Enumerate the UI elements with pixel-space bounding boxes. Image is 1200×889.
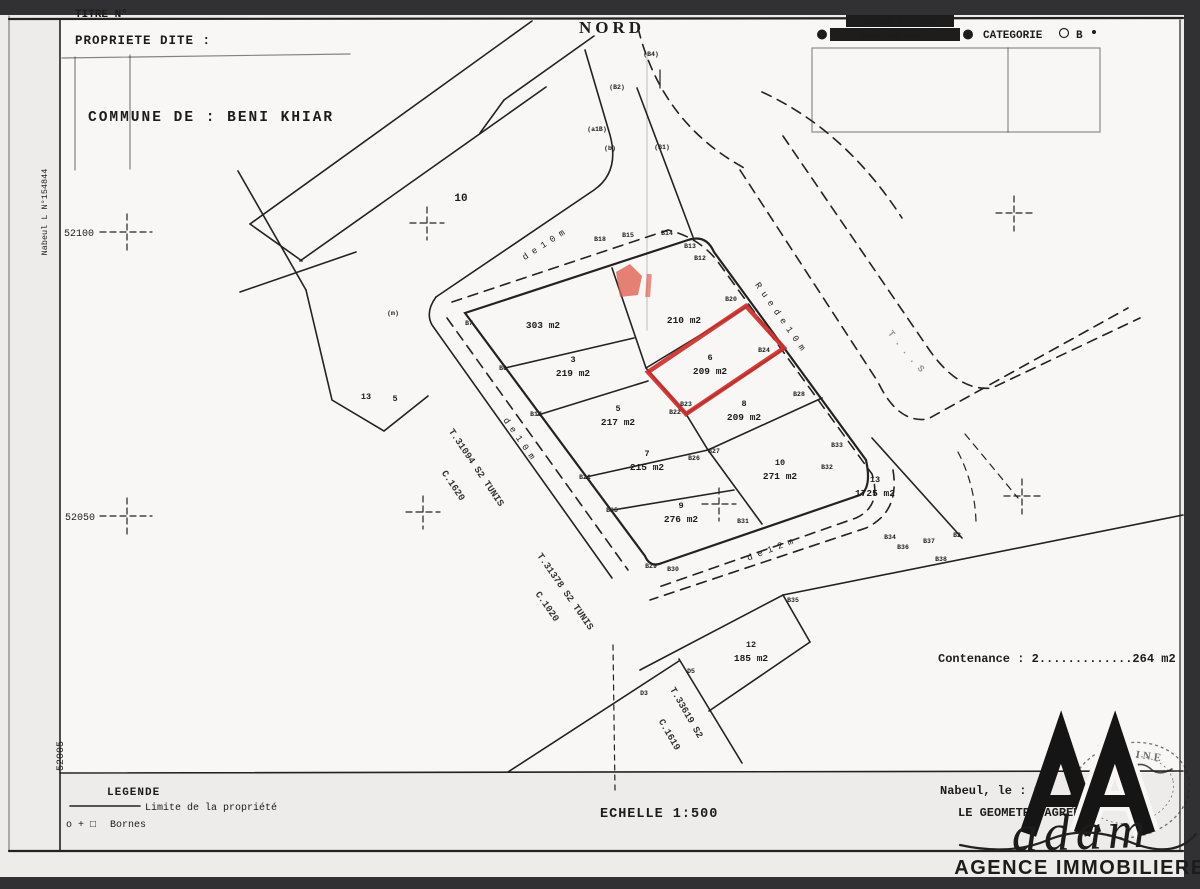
survey-point: B24	[758, 347, 770, 354]
nabeul-date-label: Nabeul, le : 20	[940, 784, 1048, 798]
survey-point: B20	[725, 296, 737, 303]
legend-bornes-label: Bornes	[110, 820, 146, 831]
survey-point: (B4)	[643, 51, 659, 58]
contenance-label: Contenance : 2.............264 m2	[938, 652, 1176, 666]
survey-point: B38	[935, 556, 947, 563]
survey-point: (B2)	[609, 84, 625, 91]
survey-point: B7	[465, 320, 473, 327]
survey-point: B33	[831, 442, 843, 449]
parcel-number: 9	[678, 501, 683, 511]
parcel-number: 13	[361, 392, 371, 402]
survey-point: B27	[708, 448, 720, 455]
survey-point: B18	[594, 236, 606, 243]
survey-point: B32	[821, 464, 833, 471]
scan-bar-top	[0, 0, 1200, 15]
parcel-area: 215 m2	[630, 462, 665, 473]
parcel-number: 8	[741, 399, 746, 409]
categorie-dot-icon	[1092, 30, 1096, 34]
survey-point: B34	[884, 534, 896, 541]
commune-label: COMMUNE DE : BENI KHIAR	[88, 110, 334, 126]
survey-point: (b)	[604, 145, 616, 152]
logo-script-text: adam	[1011, 802, 1152, 864]
parcel-number: 6	[707, 353, 712, 363]
margin-reference: Nabeul L N°154844	[40, 169, 50, 256]
survey-point: B30	[667, 566, 679, 573]
parcel-number: 7	[644, 449, 649, 459]
parcel-area: 303 m2	[526, 320, 561, 331]
survey-point: B35	[787, 597, 799, 604]
categorie-label: CATEGORIE	[983, 30, 1043, 42]
coord-52100: 52100	[64, 229, 94, 240]
parcel-area: 217 m2	[601, 417, 636, 428]
propriete-label: PROPRIETE DITE :	[75, 34, 211, 48]
parcel-area: 185 m2	[734, 653, 769, 664]
survey-point: B14	[661, 230, 673, 237]
logo-subtitle: AGENCE IMMOBILIERE	[954, 857, 1200, 879]
bureau-line1: BUREAU D'ETUDES	[864, 19, 936, 28]
survey-point: (a1B)	[587, 126, 607, 133]
bureau-line2: GEOMETRE AGREE	[861, 33, 928, 42]
coord-52050: 52050	[65, 513, 95, 524]
survey-point: B28	[793, 391, 805, 398]
survey-point: B29	[645, 563, 657, 570]
parcel-area: 276 m2	[664, 514, 699, 525]
survey-point: B31	[737, 518, 749, 525]
parcel-number: 13	[870, 475, 880, 485]
north-label: NORD	[579, 18, 645, 37]
survey-point: B13	[684, 243, 696, 250]
plan-canvas: TITRE N° PROPRIETE DITE : NORD BUREAU D'…	[0, 0, 1200, 889]
parcel-area: 219 m2	[556, 368, 591, 379]
categorie-value: B	[1076, 30, 1083, 42]
coord-52005: 52005	[56, 741, 67, 771]
legend-limite-label: Limite de la propriété	[145, 802, 277, 814]
survey-point: B25	[606, 507, 618, 514]
survey-point: B15	[622, 232, 634, 239]
survey-point: B26	[688, 455, 700, 462]
survey-point: B6	[499, 365, 507, 372]
titre-label: TITRE N°	[75, 9, 128, 21]
survey-point: B22	[669, 409, 681, 416]
parcel-area: 209 m2	[727, 412, 762, 423]
survey-point: B2	[953, 532, 961, 539]
legend-bornes-symbols: o + □	[66, 820, 96, 831]
parcel-number: 10	[454, 193, 467, 205]
scanned-cadastral-plan: TITRE N° PROPRIETE DITE : NORD BUREAU D'…	[0, 0, 1200, 889]
survey-point: B12	[694, 255, 706, 262]
parcel-area: 210 m2	[667, 315, 702, 326]
survey-point: D5	[687, 668, 695, 675]
parcel-number: 3	[570, 355, 575, 365]
scale-label: ECHELLE 1:500	[600, 807, 718, 822]
parcel-number: 12	[746, 640, 756, 650]
survey-point: B37	[923, 538, 935, 545]
parcel-area: 209 m2	[693, 366, 728, 377]
survey-point: B23	[680, 401, 692, 408]
survey-point: (m)	[387, 310, 399, 317]
survey-point: D3	[640, 690, 648, 697]
parcel-area: 1725 m2	[855, 488, 895, 499]
survey-point: (B1)	[654, 144, 670, 151]
survey-point: B36	[897, 544, 909, 551]
legend-title: LEGENDE	[107, 787, 160, 799]
scan-bar-right	[1184, 0, 1200, 889]
parcel-number: 10	[775, 458, 785, 468]
survey-point: B21	[579, 474, 591, 481]
parcel-number: 5	[392, 394, 397, 404]
survey-point: B17	[530, 411, 542, 418]
parcel-area: 271 m2	[763, 471, 798, 482]
parcel-number: 5	[615, 404, 620, 414]
